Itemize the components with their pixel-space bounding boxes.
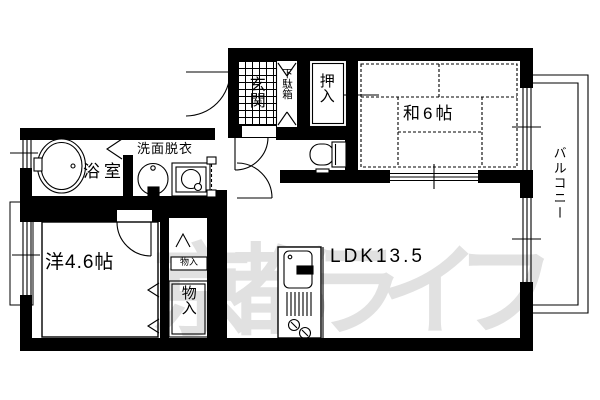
wall — [280, 170, 390, 183]
window-western-left — [12, 215, 40, 295]
floorplan: 京都ライフ — [0, 0, 600, 400]
window-washitsu — [512, 88, 541, 170]
entrance-door-arc — [186, 72, 230, 116]
room-label-balcony: バルコニー — [552, 146, 566, 221]
wall — [20, 210, 117, 222]
wall — [228, 61, 238, 127]
wall — [20, 196, 220, 210]
wall — [228, 125, 242, 138]
wall — [520, 48, 533, 88]
room-label-genkan: 玄関 — [246, 76, 263, 108]
room-label-oshiire: 押入 — [318, 73, 334, 103]
washing-machine — [172, 163, 210, 196]
sliding-door-washitsu-ldk — [390, 164, 478, 189]
wall — [20, 128, 215, 140]
room-label-storage-large: 物入 — [180, 285, 196, 315]
toilet-door-arc — [235, 137, 268, 170]
room-label-ldk: LDK13.5 — [330, 247, 425, 267]
genkan-step — [240, 126, 276, 138]
room-label-bath: 浴室 — [83, 163, 125, 181]
wall — [228, 48, 533, 61]
hall-ldk-door-arc — [237, 163, 272, 198]
wall — [276, 127, 358, 140]
wall — [520, 170, 533, 198]
room-label-washitsu: 和6帖 — [403, 105, 455, 123]
wall — [160, 218, 169, 338]
room-label-getabako: 下駄箱 — [281, 68, 292, 100]
wall — [347, 61, 358, 127]
wall — [211, 190, 227, 338]
western-door-arc — [117, 222, 151, 256]
toilet — [310, 142, 346, 173]
wall — [20, 338, 533, 351]
room-label-storage-small: 物入 — [171, 258, 207, 267]
bath-door — [107, 139, 122, 159]
window-bath-left — [10, 138, 38, 168]
room-label-western: 洋4.6帖 — [45, 253, 114, 273]
room-label-senmen: 洗面脱衣 — [137, 142, 193, 156]
bathtub — [34, 139, 86, 193]
washbasin — [138, 164, 168, 197]
wall — [297, 61, 309, 127]
